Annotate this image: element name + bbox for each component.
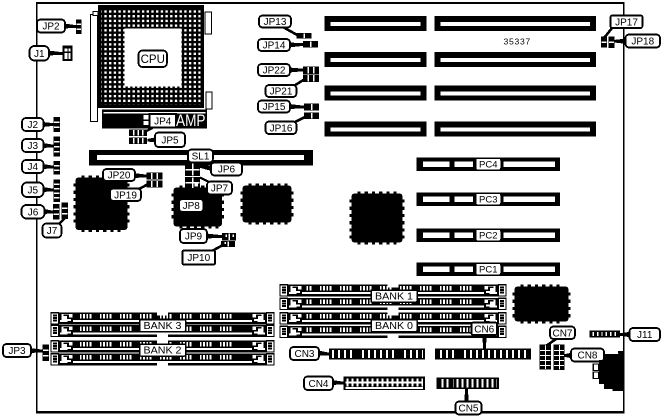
svg-text:JP15: JP15 (263, 102, 286, 113)
svg-text:J11: J11 (637, 330, 653, 341)
svg-text:35337: 35337 (504, 37, 531, 47)
svg-text:J2: J2 (27, 120, 38, 131)
svg-text:BANK 3: BANK 3 (144, 321, 182, 332)
svg-text:JP8: JP8 (183, 201, 201, 212)
svg-text:JP16: JP16 (270, 123, 293, 134)
svg-text:JP7: JP7 (211, 184, 229, 195)
svg-text:CPU: CPU (141, 54, 165, 66)
svg-text:JP17: JP17 (615, 17, 638, 28)
svg-text:BANK 2: BANK 2 (144, 346, 182, 357)
svg-text:J4: J4 (27, 162, 38, 173)
svg-text:JP4: JP4 (154, 116, 172, 127)
svg-text:J1: J1 (34, 49, 45, 60)
svg-text:J3: J3 (27, 141, 38, 152)
svg-text:JP19: JP19 (114, 190, 137, 201)
svg-text:CN3: CN3 (294, 349, 314, 360)
svg-text:BANK 1: BANK 1 (375, 292, 413, 303)
svg-text:JP10: JP10 (187, 253, 210, 264)
svg-text:PC4: PC4 (479, 160, 497, 171)
svg-text:AMP: AMP (176, 112, 206, 130)
svg-text:JP18: JP18 (631, 37, 654, 48)
svg-text:PC3: PC3 (479, 195, 497, 206)
svg-text:JP20: JP20 (108, 171, 131, 182)
svg-text:PC2: PC2 (479, 231, 497, 242)
svg-text:BANK 0: BANK 0 (375, 321, 413, 332)
svg-text:CN4: CN4 (308, 379, 328, 390)
svg-text:CN7: CN7 (552, 328, 572, 339)
svg-text:J6: J6 (28, 207, 39, 218)
svg-text:J5: J5 (27, 185, 38, 196)
svg-text:JP9: JP9 (185, 232, 203, 243)
svg-text:JP13: JP13 (264, 17, 287, 28)
svg-text:JP22: JP22 (263, 66, 286, 77)
svg-text:JP21: JP21 (270, 87, 293, 98)
svg-text:PC1: PC1 (479, 265, 497, 276)
svg-text:CN6: CN6 (474, 324, 494, 335)
svg-text:JP5: JP5 (161, 135, 179, 146)
svg-text:CN8: CN8 (577, 351, 597, 362)
svg-text:SL1: SL1 (192, 152, 210, 163)
svg-text:JP6: JP6 (218, 165, 236, 176)
svg-text:J7: J7 (47, 226, 58, 237)
svg-text:JP3: JP3 (8, 346, 26, 357)
svg-text:CN5: CN5 (458, 404, 478, 415)
svg-text:JP14: JP14 (263, 41, 286, 52)
svg-text:JP2: JP2 (42, 22, 60, 33)
